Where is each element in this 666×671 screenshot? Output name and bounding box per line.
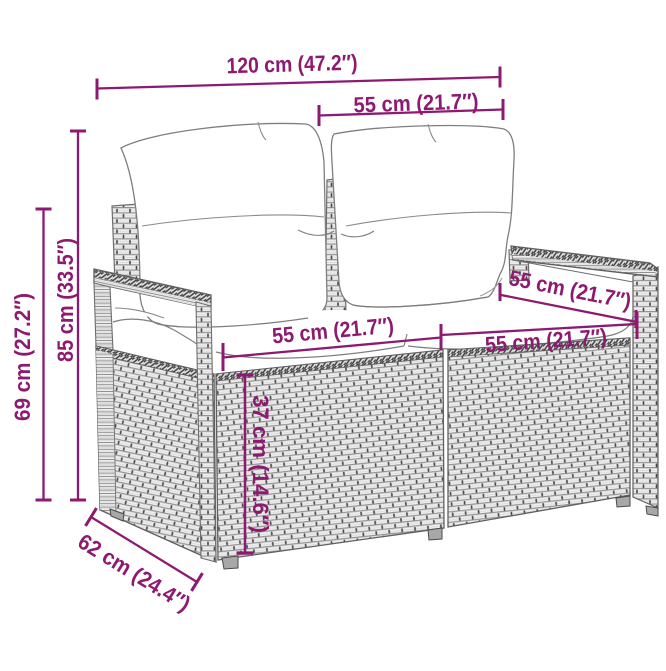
svg-text:55 cm (21.7″): 55 cm (21.7″) [353,89,479,118]
svg-text:37 cm (14.6″): 37 cm (14.6″) [248,395,273,533]
svg-text:85 cm (33.5″): 85 cm (33.5″) [53,238,78,362]
svg-text:120 cm (47.2″): 120 cm (47.2″) [226,50,358,79]
svg-text:69 cm (27.2″): 69 cm (27.2″) [10,293,35,421]
